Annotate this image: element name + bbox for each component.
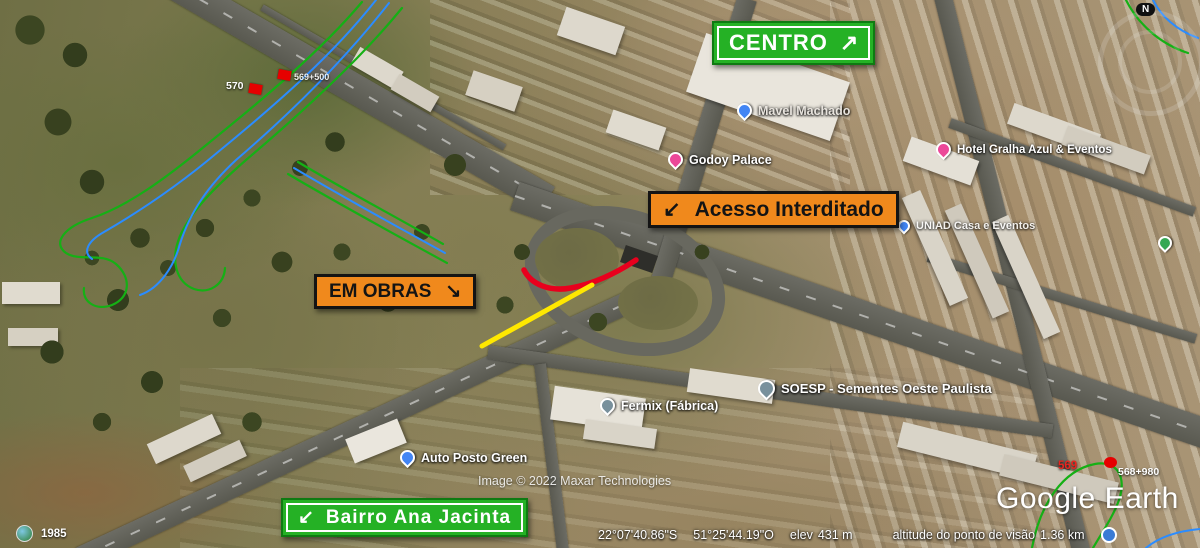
km-marker-label: 569+500	[294, 72, 329, 82]
interchange-grass-island	[618, 276, 698, 330]
lodging-pin-icon[interactable]	[665, 149, 686, 170]
arrow-down-left-icon: ↙	[298, 506, 314, 529]
latitude-value: 22°07'40.86"S	[598, 528, 677, 542]
sign-centro: CENTRO ↗	[712, 21, 875, 65]
poi-label[interactable]: Hotel Gralha Azul & Eventos	[957, 144, 1112, 156]
sign-em-obras-label: EM OBRAS	[329, 281, 431, 303]
sign-acesso-label: Acesso Interditado	[695, 198, 884, 222]
arrow-up-right-icon: ↗	[840, 30, 858, 56]
km-marker-square	[277, 69, 292, 81]
poi-soesp[interactable]: SOESP - Sementes Oeste Paulista	[758, 380, 992, 397]
km-marker-label: 569	[1058, 460, 1077, 472]
interchange-grass-island	[535, 228, 619, 290]
status-bar: 22°07'40.86"S 51°25'44.19"O elev 431 m a…	[598, 527, 1117, 543]
poi-label[interactable]: Mavel Machado	[758, 104, 850, 118]
sign-acesso-interditado: ↙ Acesso Interditado	[648, 191, 899, 228]
elevation-value: 431 m	[818, 528, 853, 542]
lodging-pin-icon[interactable]	[933, 139, 954, 160]
poi-hotel-gralha-azul[interactable]: Hotel Gralha Azul & Eventos	[936, 142, 1112, 157]
km-marker-square	[248, 83, 263, 95]
km-marker-label: 568+980	[1118, 466, 1159, 478]
poi-label[interactable]: Fermix (Fábrica)	[621, 399, 718, 413]
imagery-year: 1985	[41, 528, 67, 540]
sign-centro-label: CENTRO	[729, 30, 828, 56]
elevation-label: elev	[790, 528, 813, 542]
poi-uniad[interactable]: UNIAD Casa e Eventos	[898, 220, 1035, 232]
place-pin-icon[interactable]	[734, 100, 755, 121]
view-altitude-label: altitude do ponto de visão	[893, 528, 1035, 542]
imagery-attribution: Image © 2022 Maxar Technologies	[478, 474, 671, 488]
poi-auto-posto-green[interactable]: Auto Posto Green	[400, 450, 527, 465]
arrow-down-right-icon: ↘	[445, 280, 461, 303]
poi-label[interactable]: Godoy Palace	[689, 153, 772, 167]
place-pin-icon[interactable]	[597, 395, 618, 416]
poi-label[interactable]: UNIAD Casa e Eventos	[916, 220, 1035, 232]
place-pin-icon[interactable]	[397, 447, 418, 468]
longitude-value: 51°25'44.19"O	[693, 528, 774, 542]
building-roof	[8, 328, 58, 346]
map-viewport[interactable]: Mavel Machado Godoy Palace Hotel Gralha …	[0, 0, 1200, 548]
km-marker-label: 570	[226, 80, 244, 92]
sign-em-obras: EM OBRAS ↘	[314, 274, 476, 309]
arrow-down-left-icon: ↙	[663, 197, 681, 222]
poi-label[interactable]: SOESP - Sementes Oeste Paulista	[781, 381, 992, 396]
poi-label[interactable]: Auto Posto Green	[421, 451, 527, 465]
poi-godoy-palace[interactable]: Godoy Palace	[668, 152, 772, 167]
sign-bairro-label: Bairro Ana Jacinta	[326, 507, 511, 529]
poi-mavel-machado[interactable]: Mavel Machado	[737, 103, 850, 118]
sign-bairro-ana-jacinta: ↙ Bairro Ana Jacinta	[281, 498, 528, 537]
compass-ring[interactable]	[1118, 30, 1182, 94]
building-roof	[2, 282, 60, 304]
compass-north-button[interactable]: N	[1136, 3, 1155, 16]
historical-imagery-control[interactable]: 1985	[16, 525, 67, 542]
google-earth-logo: Google Earth	[996, 482, 1179, 516]
km-marker-dot	[1104, 457, 1117, 468]
historical-imagery-icon[interactable]	[16, 525, 33, 542]
place-pin-icon[interactable]	[754, 376, 778, 400]
view-altitude-value: 1.36 km	[1040, 528, 1084, 542]
poi-fermix[interactable]: Fermix (Fábrica)	[600, 398, 718, 413]
eye-altitude-icon	[1101, 527, 1117, 543]
